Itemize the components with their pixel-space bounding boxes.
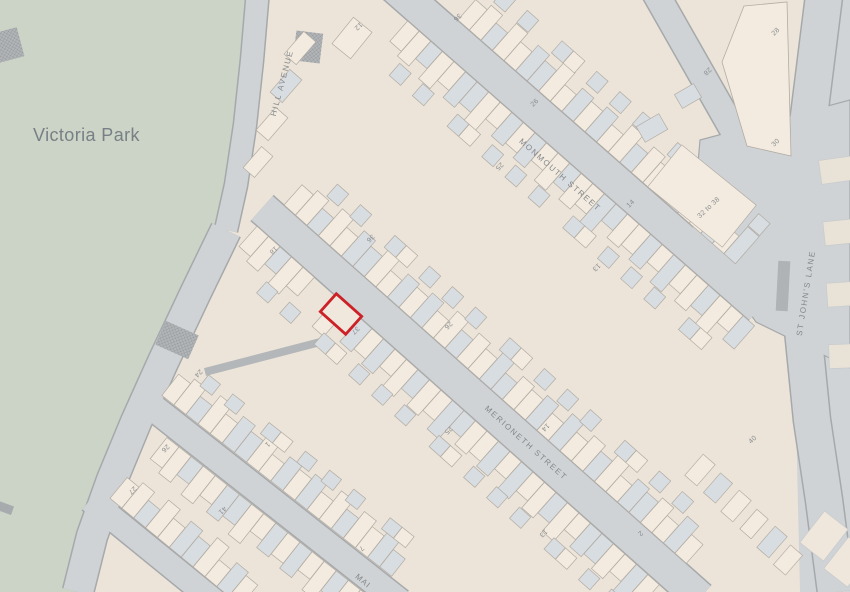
- building: [819, 156, 850, 185]
- map-canvas[interactable]: Victoria Park HILL AVENUE MONMOUTH STREE…: [0, 0, 850, 592]
- park-label: Victoria Park: [33, 125, 140, 146]
- building: [823, 218, 850, 246]
- building: [826, 281, 850, 307]
- map-graphics: [0, 0, 850, 592]
- building: [829, 343, 850, 368]
